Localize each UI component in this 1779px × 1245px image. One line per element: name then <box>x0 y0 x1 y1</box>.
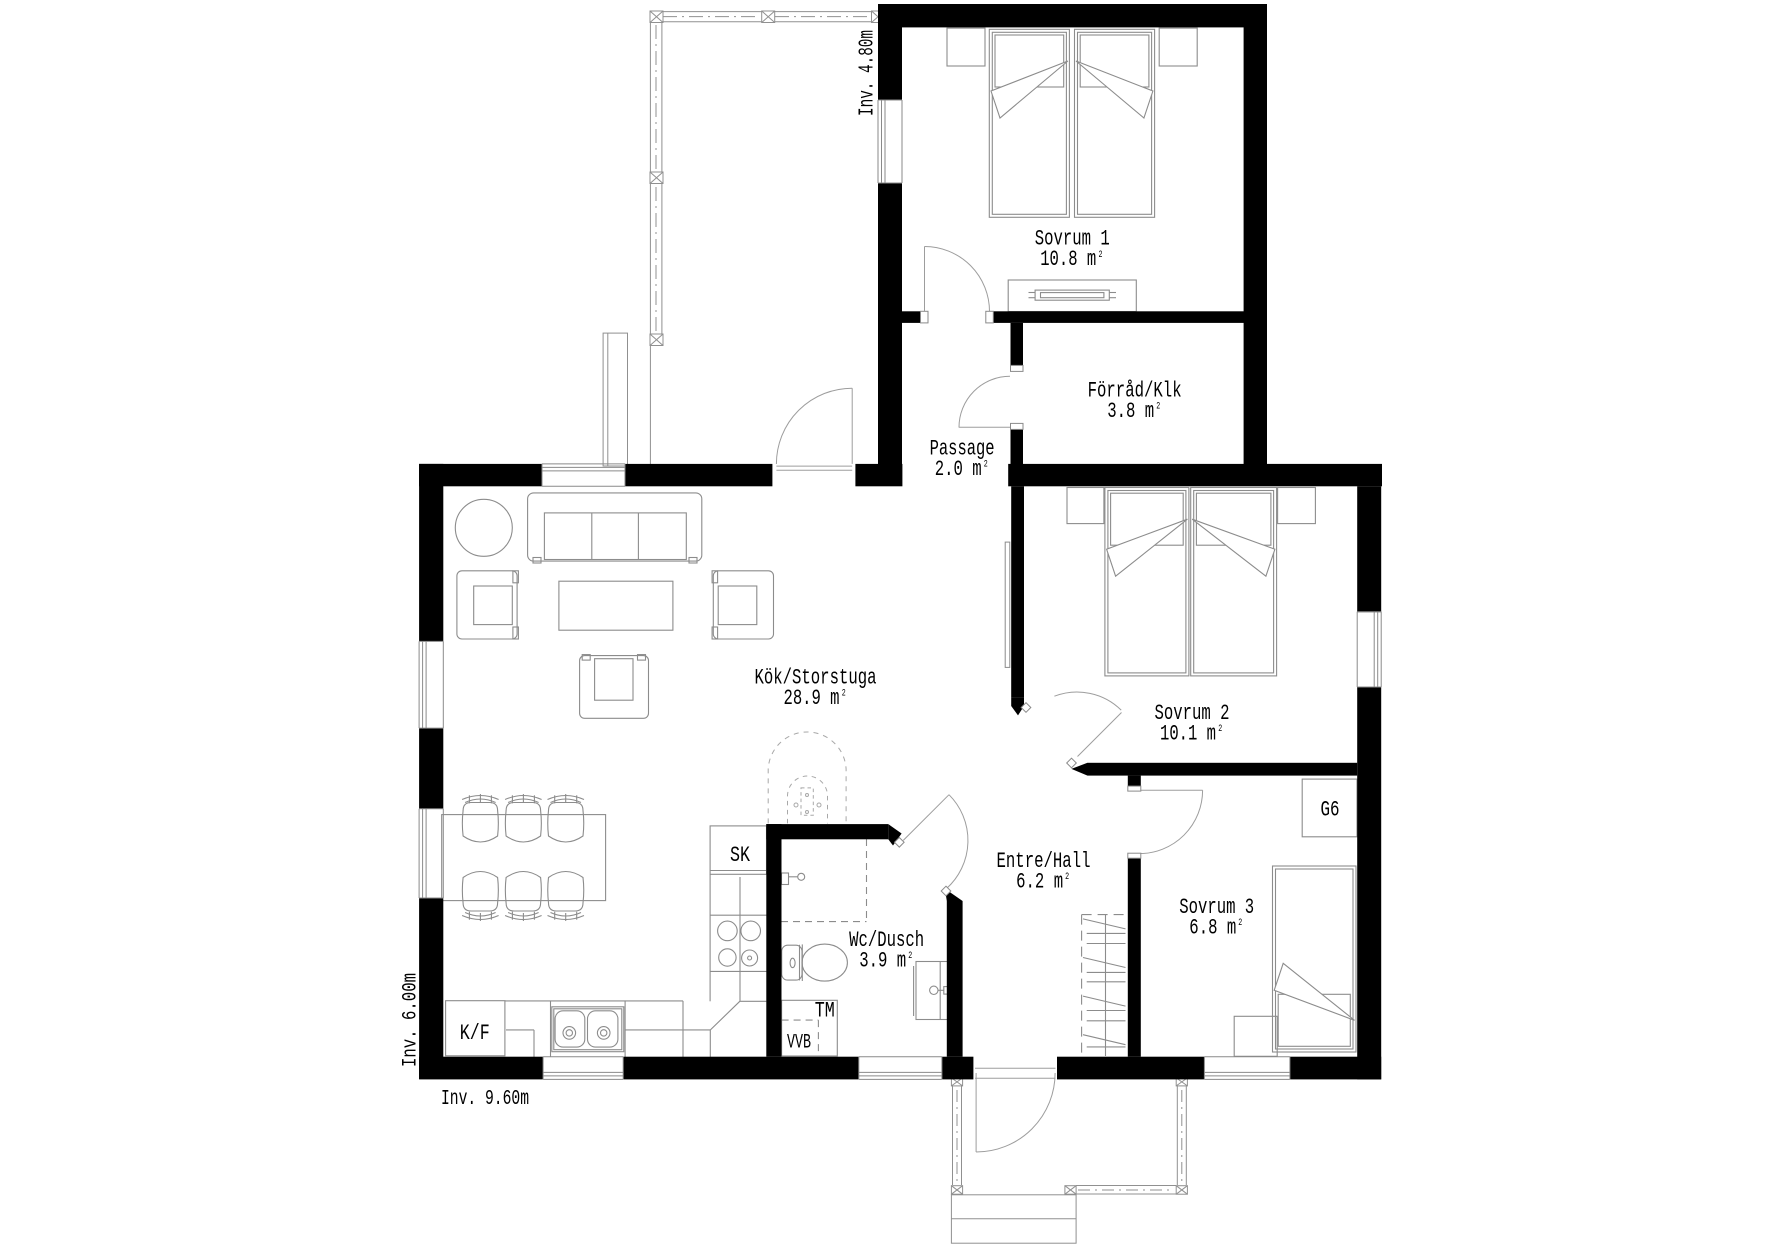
svg-text:2: 2 <box>842 688 846 700</box>
svg-text:28.9 m: 28.9 m <box>784 686 840 711</box>
svg-text:TM: TM <box>815 999 835 1024</box>
svg-text:3.8 m: 3.8 m <box>1107 399 1154 424</box>
svg-text:VVB: VVB <box>787 1032 811 1055</box>
svg-text:2: 2 <box>1156 401 1160 413</box>
svg-text:2: 2 <box>1099 249 1103 261</box>
svg-text:2: 2 <box>984 459 988 471</box>
svg-text:10.1 m: 10.1 m <box>1160 722 1216 747</box>
svg-text:Inv. 6.00m: Inv. 6.00m <box>399 973 422 1067</box>
svg-text:3.9 m: 3.9 m <box>859 948 906 973</box>
svg-text:SK: SK <box>730 843 751 868</box>
svg-text:2: 2 <box>1238 917 1242 929</box>
svg-text:2: 2 <box>908 950 912 962</box>
svg-text:G6: G6 <box>1321 798 1340 823</box>
svg-text:2.0 m: 2.0 m <box>935 457 982 482</box>
svg-text:10.8 m: 10.8 m <box>1040 247 1096 272</box>
svg-text:Inv. 4.80m: Inv. 4.80m <box>857 30 880 116</box>
svg-text:K/F: K/F <box>460 1021 490 1046</box>
svg-text:6.2 m: 6.2 m <box>1016 869 1063 894</box>
svg-text:2: 2 <box>1218 723 1222 735</box>
svg-text:6.8 m: 6.8 m <box>1189 916 1236 941</box>
svg-text:2: 2 <box>1065 871 1069 883</box>
svg-text:Inv. 9.60m: Inv. 9.60m <box>441 1087 529 1111</box>
